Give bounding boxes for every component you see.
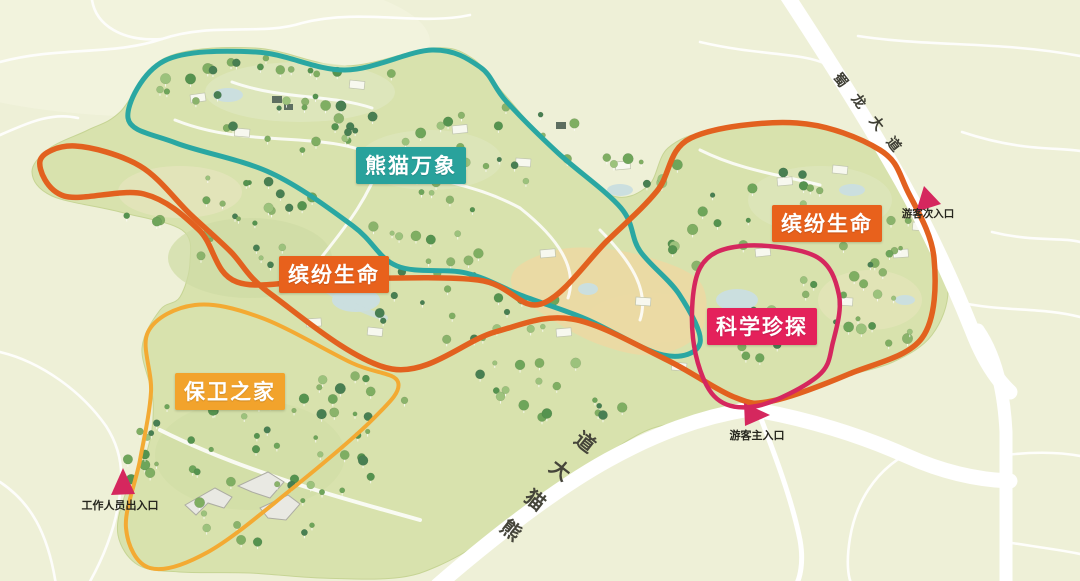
zone-label-colorful-life-east: 缤纷生命 — [772, 205, 882, 242]
zone-label-colorful-life-west: 缤纷生命 — [279, 256, 389, 293]
zone-label-science-exploration: 科学珍探 — [707, 308, 817, 345]
visitor-main-entrance-label: 游客主入口 — [730, 427, 785, 443]
map-canvas: 熊猫万象 缤纷生命 缤纷生命 科学珍探 保卫之家 蜀 龙 大 道 熊 猫 大 道… — [0, 0, 1080, 581]
visitor-secondary-entrance-label: 游客次入口 — [902, 206, 955, 221]
staff-entrance-label: 工作人员出入口 — [82, 497, 159, 513]
zone-label-panda-universe: 熊猫万象 — [356, 147, 466, 184]
zone-label-guardian-home: 保卫之家 — [175, 373, 285, 410]
